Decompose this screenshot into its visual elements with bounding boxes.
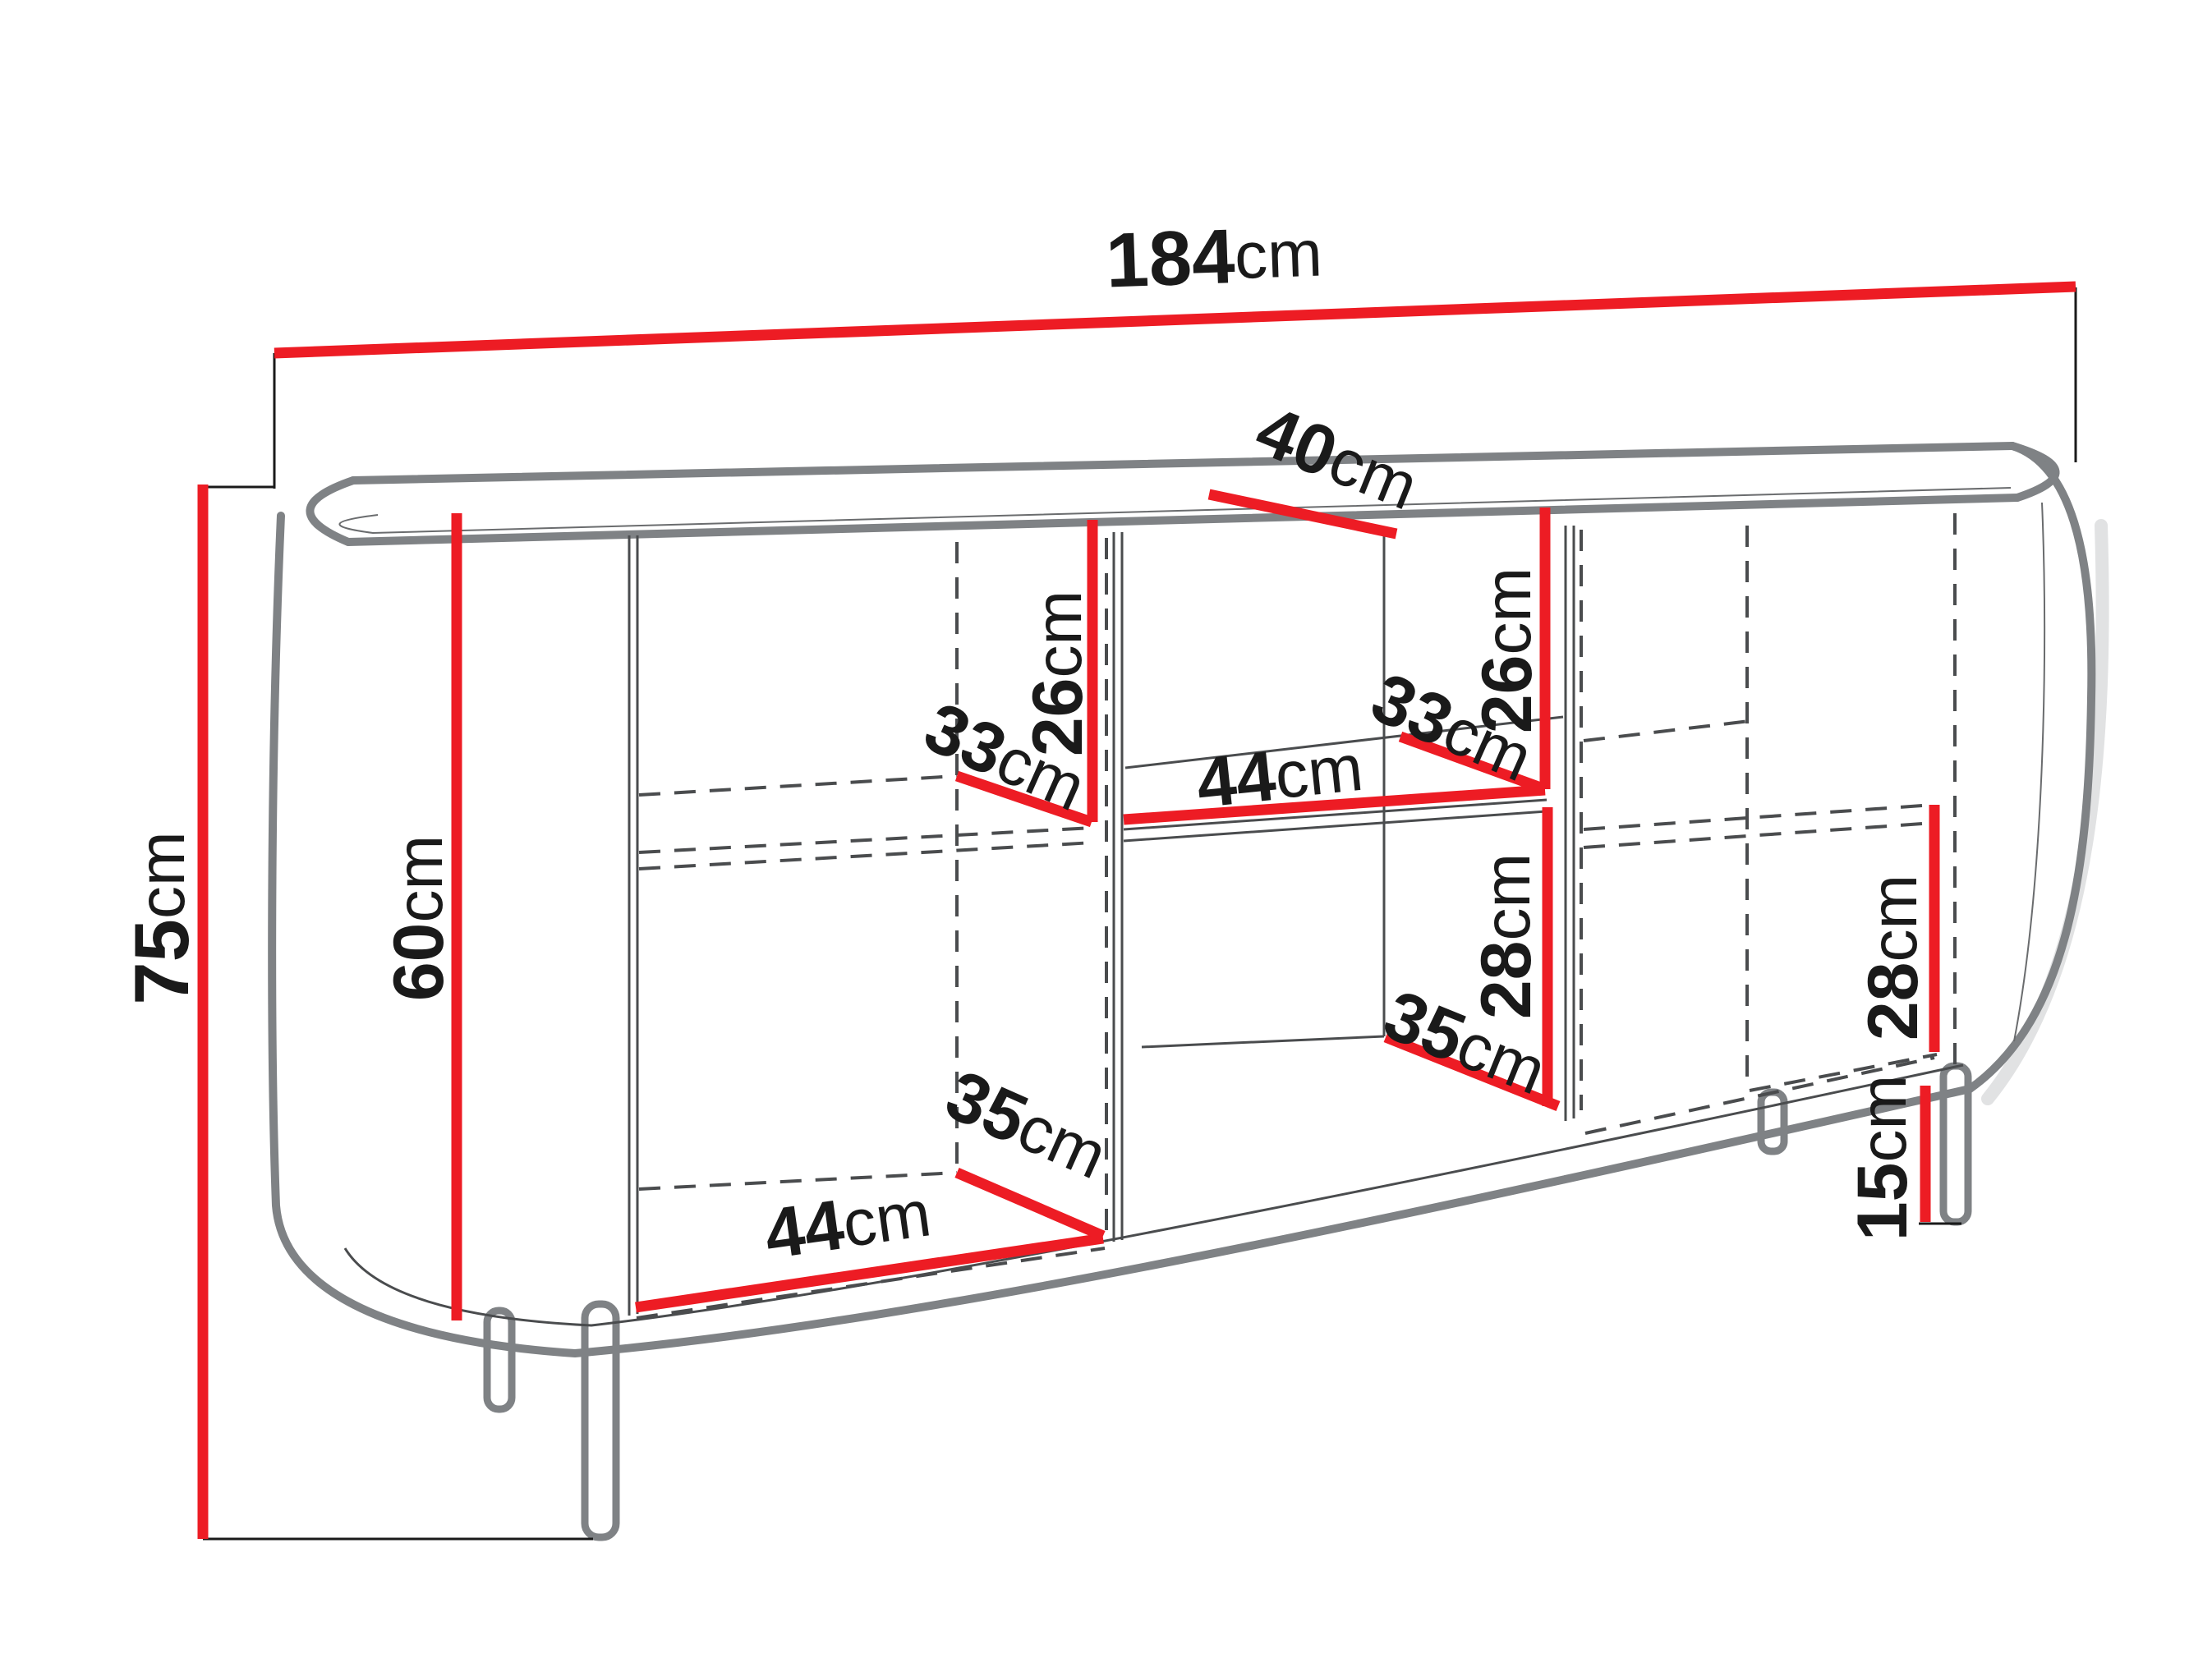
dim-label-left-bottom-width: 44cm bbox=[760, 1173, 936, 1274]
left-comp-shelf-front-bottom bbox=[639, 843, 1093, 869]
bottom-front-edge bbox=[345, 1065, 1963, 1325]
right-comp-shelf-back bbox=[1584, 721, 1750, 741]
top-left-cap bbox=[310, 480, 353, 542]
back-left-leg bbox=[487, 1311, 512, 1409]
dimension-labels: 184cm 40cm 75cm 60cm 26cm 33cm 26cm 33cm… bbox=[118, 209, 1934, 1275]
top-back-edge bbox=[353, 446, 2012, 480]
front-left-leg bbox=[585, 1304, 616, 1537]
diagram-canvas: 184cm 40cm 75cm 60cm 26cm 33cm 26cm 33cm… bbox=[0, 0, 2212, 1658]
right-end-edge bbox=[1970, 446, 2091, 1089]
dim-label-width: 184cm bbox=[1105, 209, 1324, 303]
dim-label-leg-height: 15cm bbox=[1843, 1075, 1922, 1241]
cabinet-body bbox=[272, 446, 2091, 1353]
width-ext-left bbox=[204, 353, 274, 489]
top-surface-front-line bbox=[339, 488, 2011, 533]
back-right-leg bbox=[1761, 1092, 1784, 1151]
dim-label-height: 75cm bbox=[118, 831, 205, 1004]
dim-label-mid-lower-height: 28cm bbox=[1467, 853, 1546, 1019]
left-comp-shelf-front-top bbox=[639, 828, 1093, 852]
mid-floor-back-edge bbox=[1142, 1036, 1384, 1047]
dim-label-body-height: 60cm bbox=[379, 835, 458, 1001]
dim-label-right-lower-height: 28cm bbox=[1854, 875, 1933, 1040]
left-comp-shelf-back bbox=[639, 776, 957, 795]
furniture-dimension-diagram: 184cm 40cm 75cm 60cm 26cm 33cm 26cm 33cm… bbox=[0, 0, 2212, 1658]
top-front-edge bbox=[348, 498, 2017, 542]
right-end-inner-line bbox=[2014, 503, 2044, 1041]
